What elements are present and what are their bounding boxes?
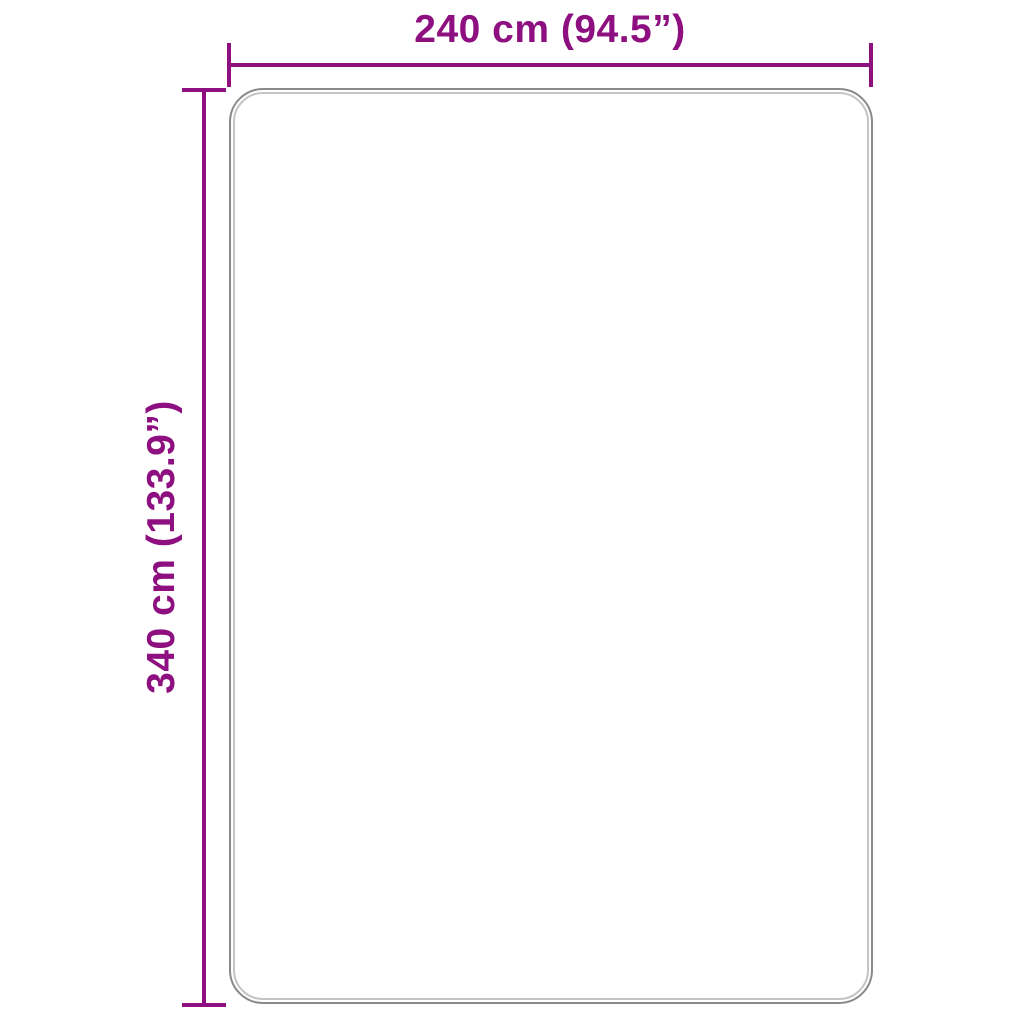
height-dimension-label: 340 cm (133.9”)	[140, 400, 184, 694]
product-outline-inner-edge	[233, 92, 869, 1000]
height-dimension-tick-bottom	[182, 1003, 226, 1007]
width-dimension-tick-left	[227, 43, 231, 87]
width-dimension-tick-right	[869, 43, 873, 87]
height-dimension-line	[202, 88, 206, 1007]
width-dimension-label: 240 cm (94.5”)	[414, 8, 686, 52]
width-dimension-line	[229, 63, 873, 67]
product-outline-rectangle	[229, 88, 873, 1004]
dimension-diagram: 240 cm (94.5”) 340 cm (133.9”)	[0, 0, 1024, 1024]
height-dimension-tick-top	[182, 88, 226, 92]
